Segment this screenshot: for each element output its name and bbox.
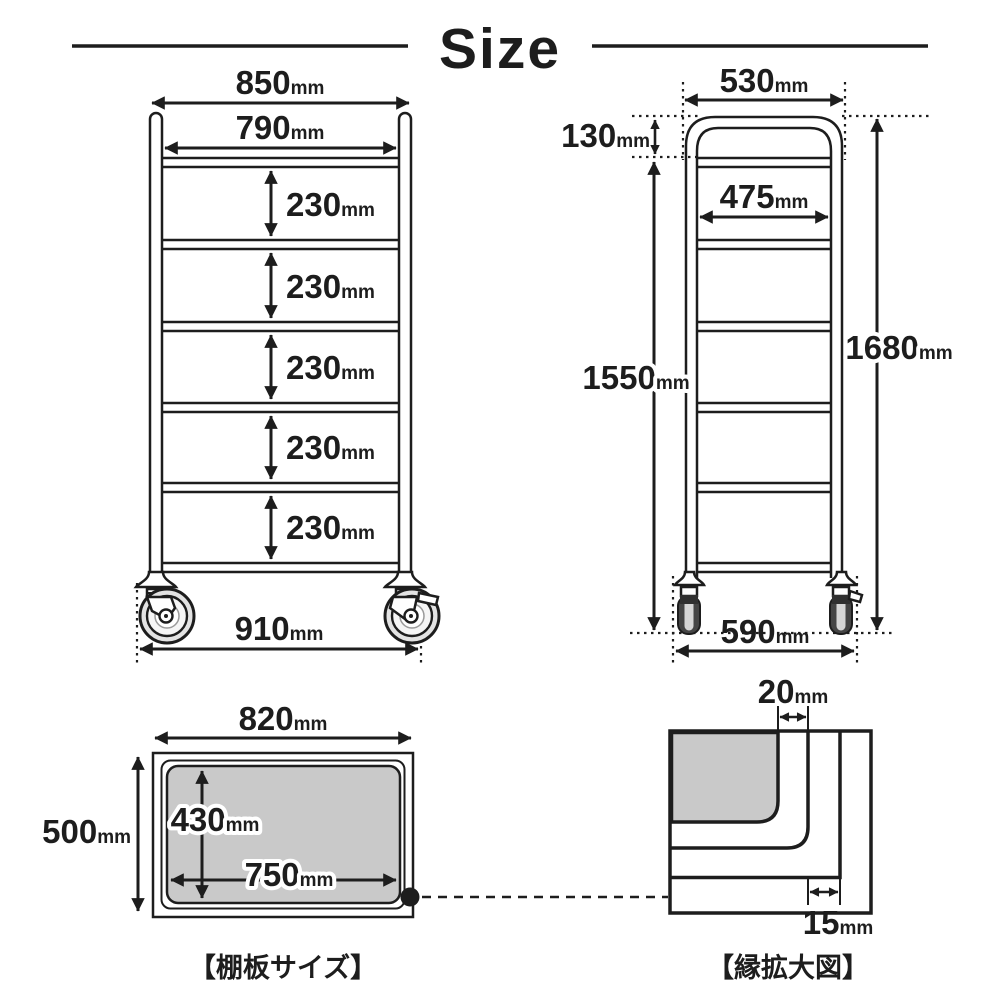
dim-unit: mm — [656, 373, 690, 394]
side-view-diagram: 530mm 130mm 475mm 1550mm 1680mm 590mm — [561, 62, 952, 664]
dim-unit: mm — [616, 131, 650, 152]
size-diagram-svg: Size — [0, 0, 1000, 1000]
dim-value: 590 — [721, 613, 776, 650]
dim-value: 1550 — [582, 359, 655, 396]
caster-side-right — [827, 572, 862, 634]
dim-unit: mm — [341, 282, 375, 303]
dim-value: 850 — [236, 64, 291, 101]
page-title: Size — [439, 17, 561, 81]
dim-value: 20 — [758, 673, 795, 710]
dim-label-caster-span: 910mm — [235, 610, 324, 647]
dim-value: 230 — [286, 509, 341, 546]
callout-dot — [401, 888, 420, 907]
size-diagram-page: Size — [0, 0, 1000, 1000]
front-view-diagram: 850mm 790mm 230mm 230mm 230mm 230mm 230m… — [136, 64, 439, 665]
dim-value: 430 — [171, 801, 226, 838]
dim-unit: mm — [290, 624, 324, 645]
side-shelves — [697, 158, 831, 572]
dim-unit: mm — [226, 815, 260, 836]
dim-value: 750 — [245, 856, 300, 893]
dim-value: 530 — [720, 62, 775, 99]
dim-unit: mm — [341, 363, 375, 384]
dim-value: 790 — [236, 109, 291, 146]
caster-wheel-stripe — [685, 600, 694, 631]
dim-unit: mm — [839, 918, 873, 939]
front-post-right — [399, 113, 411, 580]
title-section: Size — [72, 17, 928, 81]
dim-label-gap-5: 230mm — [286, 509, 375, 546]
dim-value: 910 — [235, 610, 290, 647]
caster-stem — [833, 587, 849, 596]
front-post-left — [150, 113, 162, 580]
dim-value: 1680 — [845, 329, 918, 366]
dim-unit: mm — [294, 714, 328, 735]
dim-value: 230 — [286, 268, 341, 305]
dim-value: 230 — [286, 429, 341, 466]
caster-wheel-stripe — [837, 600, 846, 631]
dim-unit: mm — [97, 827, 131, 848]
dim-label-gap-4: 230mm — [286, 429, 375, 466]
dim-label-shelf-top-height: 1550mm — [582, 359, 689, 396]
dim-label-top-offset: 20mm — [758, 673, 829, 710]
dim-label-gap-2: 230mm — [286, 268, 375, 305]
caster-axle — [409, 614, 413, 618]
front-shelf-gap-dimensions: 230mm 230mm 230mm 230mm 230mm — [271, 171, 375, 559]
dim-value: 820 — [239, 700, 294, 737]
dim-unit: mm — [775, 192, 809, 213]
caster-fork — [680, 595, 698, 604]
dim-unit: mm — [291, 123, 325, 144]
dim-unit: mm — [300, 870, 334, 891]
dim-value: 500 — [42, 813, 97, 850]
dim-value: 475 — [720, 178, 775, 215]
caster-side-left — [675, 572, 704, 634]
dim-label-board-width: 820mm — [239, 700, 328, 737]
caster-foot — [675, 572, 704, 585]
caster-axle — [164, 614, 168, 618]
dim-unit: mm — [794, 687, 828, 708]
dim-label-top-depth: 530mm — [720, 62, 809, 99]
dim-unit: mm — [919, 343, 953, 364]
dim-unit: mm — [341, 443, 375, 464]
dim-value: 230 — [286, 186, 341, 223]
shelf-board-caption: 【棚板サイズ】 — [189, 952, 377, 983]
caster-front-right — [385, 572, 439, 643]
dim-label-bottom-span: 590mm — [721, 613, 810, 650]
dim-label-overall-width: 850mm — [236, 64, 325, 101]
dim-unit: mm — [341, 523, 375, 544]
dim-unit: mm — [776, 627, 810, 648]
dim-label-overall-height: 1680mm — [845, 329, 952, 366]
dim-label-gap-1: 230mm — [286, 186, 375, 223]
caster-foot — [385, 572, 425, 587]
dim-label-handle-height: 130mm — [561, 117, 650, 154]
caster-fork — [832, 595, 850, 604]
dim-label-gap-3: 230mm — [286, 349, 375, 386]
dim-label-shelf-width: 790mm — [236, 109, 325, 146]
dim-unit: mm — [775, 76, 809, 97]
caster-brake-lever — [849, 591, 862, 602]
dim-unit: mm — [291, 78, 325, 99]
edge-detail-diagram: 20mm 15mm 【縁拡大図】 — [670, 673, 873, 983]
dim-unit: mm — [341, 200, 375, 221]
dim-value: 15 — [803, 904, 840, 941]
dim-label-inner-depth: 475mm — [720, 178, 809, 215]
caster-foot — [136, 572, 176, 587]
caster-stem — [681, 587, 697, 596]
dim-label-board-depth: 500mm — [42, 813, 131, 850]
shelf-board-diagram: 820mm 500mm 430mm 750mm 【棚板サイズ】 — [42, 700, 668, 983]
dim-value: 130 — [561, 117, 616, 154]
caster-front-left — [136, 572, 194, 643]
dim-value: 230 — [286, 349, 341, 386]
edge-detail-caption: 【縁拡大図】 — [707, 952, 869, 983]
detail-gray-surface — [672, 733, 779, 823]
